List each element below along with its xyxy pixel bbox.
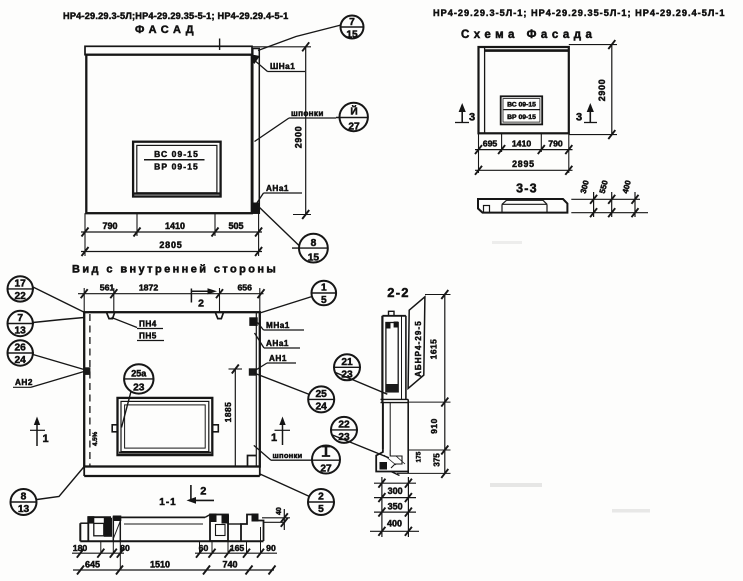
svg-text:2900: 2900 <box>597 79 607 101</box>
svg-text:ВС 09-15: ВС 09-15 <box>507 102 536 109</box>
svg-text:2900: 2900 <box>294 126 304 148</box>
svg-text:1: 1 <box>321 283 327 294</box>
svg-text:27: 27 <box>348 122 360 133</box>
svg-text:1: 1 <box>271 432 277 444</box>
svg-text:1510: 1510 <box>150 560 170 570</box>
svg-text:Вид с внутренней стороны: Вид с внутренней стороны <box>72 264 278 276</box>
svg-text:4.5%: 4.5% <box>92 431 99 446</box>
svg-text:Схема Фасада: Схема Фасада <box>461 29 596 41</box>
svg-text:3: 3 <box>576 112 582 124</box>
svg-text:165: 165 <box>230 543 245 553</box>
svg-text:1-1: 1-1 <box>159 497 176 508</box>
svg-text:80: 80 <box>120 543 130 553</box>
svg-text:27: 27 <box>320 464 332 475</box>
svg-text:790: 790 <box>102 221 117 231</box>
svg-text:8: 8 <box>21 492 27 503</box>
svg-text:ВР 09-15: ВР 09-15 <box>154 162 199 172</box>
svg-text:2-2: 2-2 <box>387 285 409 300</box>
svg-text:шпонки: шпонки <box>291 109 324 118</box>
svg-text:25а: 25а <box>131 369 147 379</box>
svg-text:2: 2 <box>200 486 206 498</box>
svg-text:300: 300 <box>579 179 591 195</box>
svg-text:695: 695 <box>483 139 498 149</box>
svg-text:1410: 1410 <box>165 221 185 231</box>
svg-text:645: 645 <box>85 560 100 570</box>
svg-text:910: 910 <box>429 418 439 433</box>
svg-text:1615: 1615 <box>429 339 439 360</box>
svg-text:505: 505 <box>228 221 243 231</box>
svg-text:15: 15 <box>308 253 320 264</box>
svg-text:5: 5 <box>321 295 327 306</box>
svg-text:АН1: АН1 <box>269 354 287 363</box>
svg-text:550: 550 <box>598 179 610 195</box>
svg-text:400: 400 <box>387 519 402 529</box>
svg-text:300: 300 <box>388 486 403 496</box>
svg-text:1872: 1872 <box>139 283 158 293</box>
svg-text:ПН4: ПН4 <box>139 320 157 329</box>
svg-text:23: 23 <box>133 383 145 394</box>
svg-text:2: 2 <box>318 492 324 503</box>
svg-text:790: 790 <box>548 139 563 149</box>
svg-text:26: 26 <box>15 343 27 354</box>
svg-text:22: 22 <box>15 291 27 302</box>
svg-text:40: 40 <box>276 507 283 515</box>
svg-text:60: 60 <box>199 543 209 553</box>
svg-text:АН2: АН2 <box>15 378 33 387</box>
svg-text:ШНа1: ШНа1 <box>270 62 295 71</box>
svg-text:17: 17 <box>15 279 27 290</box>
svg-text:13: 13 <box>15 325 27 336</box>
svg-text:13: 13 <box>18 504 30 515</box>
svg-text:656: 656 <box>237 283 252 293</box>
svg-text:561: 561 <box>100 283 115 293</box>
svg-text:180: 180 <box>73 543 88 553</box>
svg-text:1: 1 <box>43 433 49 445</box>
svg-text:175: 175 <box>416 451 423 462</box>
svg-text:1410: 1410 <box>512 139 531 149</box>
svg-text:3-3: 3-3 <box>516 182 538 196</box>
svg-text:15: 15 <box>346 30 358 41</box>
svg-text:7: 7 <box>349 17 355 28</box>
svg-text:1885: 1885 <box>223 402 233 423</box>
svg-text:3: 3 <box>469 112 475 124</box>
svg-text:шпонки: шпонки <box>273 451 303 460</box>
svg-text:ВС 09-15: ВС 09-15 <box>154 149 199 159</box>
svg-text:22: 22 <box>338 420 350 431</box>
svg-text:21: 21 <box>341 357 353 368</box>
svg-text:2: 2 <box>198 298 204 310</box>
svg-text:5: 5 <box>318 504 324 515</box>
svg-text:375: 375 <box>433 453 442 467</box>
svg-text:24: 24 <box>15 355 27 366</box>
svg-text:2805: 2805 <box>159 240 182 250</box>
svg-text:НР4-29.29.3-5Л-1; НР4-29.29.35: НР4-29.29.3-5Л-1; НР4-29.29.35-5Л-1; НР4… <box>433 8 725 18</box>
svg-text:НР4-29.29.3-5Л;НР4-29.29.35-5-: НР4-29.29.3-5Л;НР4-29.29.35-5-1; НР4-29.… <box>63 11 288 21</box>
svg-text:ВР 09-15: ВР 09-15 <box>507 114 536 121</box>
svg-text:Й: Й <box>350 105 357 118</box>
svg-text:МНа1: МНа1 <box>266 321 290 330</box>
svg-text:7: 7 <box>17 313 23 324</box>
svg-text:ФАСАД: ФАСАД <box>135 24 198 36</box>
svg-text:АБНР4-29-5: АБНР4-29-5 <box>414 320 423 377</box>
svg-text:АНа1: АНа1 <box>266 339 289 348</box>
svg-text:350: 350 <box>388 502 403 512</box>
svg-text:24: 24 <box>316 401 328 412</box>
svg-text:2895: 2895 <box>512 159 535 169</box>
svg-text:90: 90 <box>266 543 276 553</box>
svg-text:400: 400 <box>621 179 633 195</box>
svg-text:АНа1: АНа1 <box>266 184 289 193</box>
svg-text:ПН5: ПН5 <box>139 332 157 341</box>
svg-text:740: 740 <box>222 560 237 570</box>
svg-text:25: 25 <box>316 389 328 400</box>
svg-text:8: 8 <box>311 238 317 249</box>
